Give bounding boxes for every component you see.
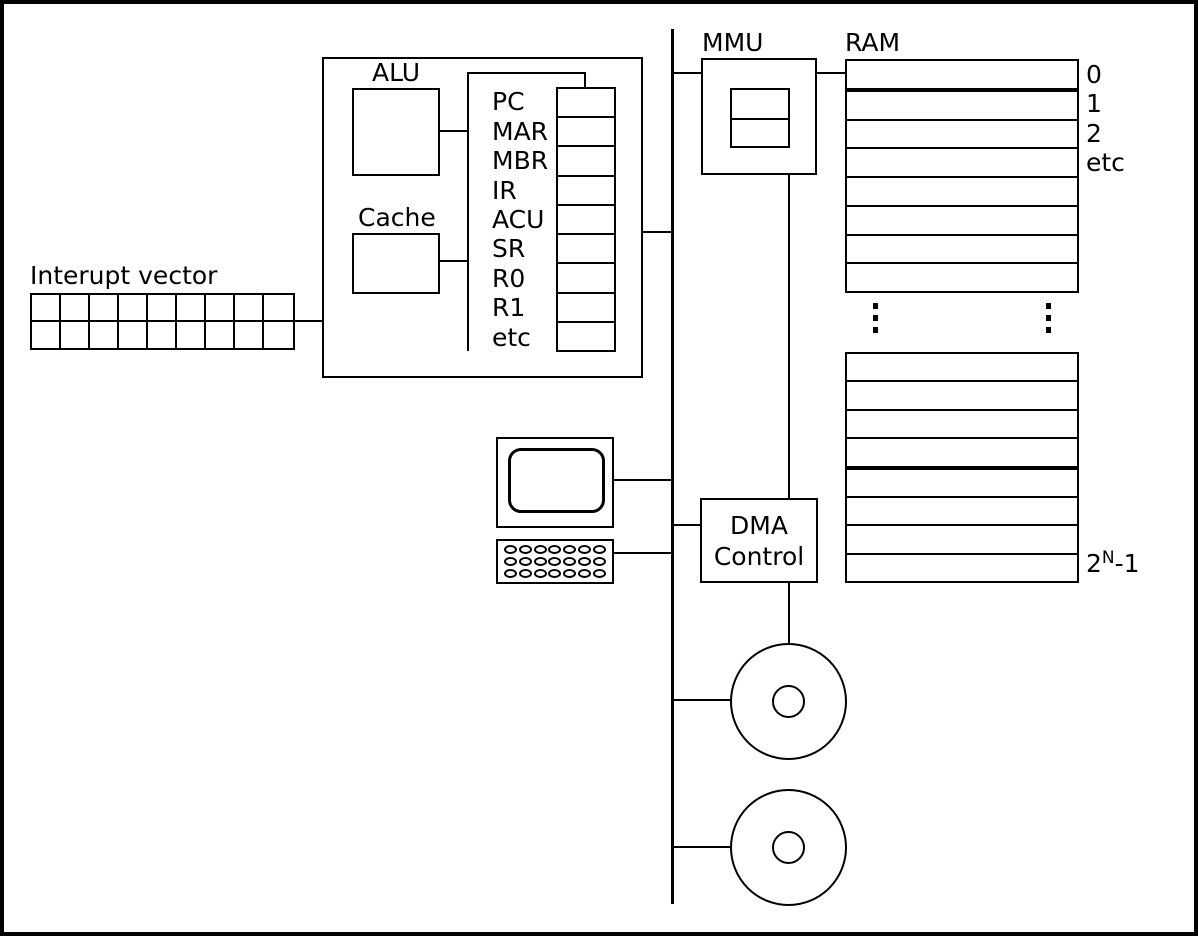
- ram-row: [847, 61, 1077, 92]
- interrupt-vector-cell: [61, 322, 90, 349]
- interrupt-vector-cell: [32, 295, 61, 322]
- ram-address-label: 2: [1086, 119, 1166, 148]
- register-label: MBR: [492, 146, 554, 175]
- ram-row: [847, 439, 1077, 469]
- ram-row: [847, 264, 1077, 291]
- keyboard-key: [563, 545, 576, 554]
- system-bus-line: [671, 29, 674, 904]
- keyboard-key: [593, 545, 606, 554]
- ram-row: [847, 178, 1077, 207]
- ram-row: [847, 498, 1077, 526]
- connector-mmu-to-ram: [817, 72, 845, 74]
- monitor-screen: [508, 448, 605, 513]
- register-label: SR: [492, 234, 554, 263]
- alu-label: ALU: [372, 60, 420, 86]
- register-label: ACU: [492, 205, 554, 234]
- keyboard-key: [578, 545, 591, 554]
- connector-bus-to-disk1: [672, 699, 730, 701]
- register-label: etc: [492, 323, 554, 352]
- connector-cache-to-registers: [439, 260, 469, 262]
- register-cell: [558, 264, 614, 293]
- connector-mmu-to-dma: [788, 175, 790, 498]
- interrupt-vector-grid: [30, 293, 295, 350]
- register-label: PC: [492, 87, 554, 116]
- interrupt-vector-label: Interupt vector: [30, 263, 217, 289]
- register-label: IR: [492, 175, 554, 204]
- interrupt-vector-cell: [119, 322, 148, 349]
- keyboard-key: [534, 557, 547, 566]
- register-label: MAR: [492, 116, 554, 145]
- ram-last-address-tail: -1: [1115, 549, 1140, 578]
- register-file-drop-line: [584, 72, 586, 88]
- keyboard-keys: [503, 543, 607, 580]
- interrupt-vector-cell: [148, 295, 177, 322]
- register-cell: [558, 89, 614, 118]
- ram-row: [847, 92, 1077, 121]
- register-file-spine-line: [467, 73, 469, 351]
- keyboard-key: [504, 545, 517, 554]
- mmu-label: MMU: [702, 30, 763, 56]
- keyboard-key: [548, 557, 561, 566]
- ram-row: [847, 121, 1077, 150]
- keyboard-key: [519, 557, 532, 566]
- ram-row: [847, 411, 1077, 439]
- ram-row: [847, 555, 1077, 581]
- connector-alu-to-registers: [439, 130, 469, 132]
- keyboard-key: [504, 569, 517, 578]
- keyboard-key: [534, 569, 547, 578]
- register-label: R0: [492, 264, 554, 293]
- keyboard-key: [519, 545, 532, 554]
- disk-hub-2: [772, 831, 805, 864]
- interrupt-vector-cell: [32, 322, 61, 349]
- connector-bus-to-dma: [672, 524, 700, 526]
- cache-label: Cache: [358, 205, 436, 231]
- keyboard-key: [534, 545, 547, 554]
- interrupt-vector-cell: [90, 322, 119, 349]
- disk-icon-1: [730, 643, 847, 760]
- ram-label: RAM: [845, 30, 900, 56]
- register-cell: [558, 294, 614, 323]
- connector-keyboard-to-bus: [614, 552, 672, 554]
- keyboard-key: [563, 569, 576, 578]
- connector-dma-to-disk: [788, 583, 790, 644]
- interrupt-vector-cell: [148, 322, 177, 349]
- ram-last-address-base: 2: [1086, 549, 1102, 578]
- register-label: R1: [492, 293, 554, 322]
- interrupt-vector-cell: [264, 295, 293, 322]
- architecture-diagram: Interupt vector ALU Cache PC MAR MBR IR …: [0, 0, 1198, 936]
- dma-label-line1: DMA: [730, 510, 788, 541]
- mmu-inner-box: [730, 88, 790, 148]
- dma-label: DMA Control: [702, 500, 816, 581]
- ram-row: [847, 354, 1077, 382]
- interrupt-vector-cell: [206, 322, 235, 349]
- ram-bottom-block: [845, 352, 1079, 583]
- ram-top-block: [845, 59, 1079, 293]
- register-cell: [558, 206, 614, 235]
- connector-bus-to-mmu: [672, 72, 701, 74]
- interrupt-vector-cell: [235, 295, 264, 322]
- register-cell: [558, 323, 614, 350]
- register-cells: [556, 87, 616, 352]
- ram-address-label: 1: [1086, 89, 1166, 118]
- connector-interrupt-to-cpu: [293, 320, 325, 322]
- ram-row: [847, 207, 1077, 236]
- ram-address-label: 0: [1086, 60, 1166, 89]
- keyboard-key: [578, 569, 591, 578]
- connector-bus-to-disk2: [672, 846, 730, 848]
- keyboard-key: [593, 569, 606, 578]
- keyboard-key: [548, 569, 561, 578]
- monitor-icon: [496, 437, 614, 528]
- keyboard-icon: [496, 539, 614, 584]
- ram-address-label: etc: [1086, 148, 1166, 177]
- dma-label-line2: Control: [714, 541, 804, 572]
- ram-last-address-label: 2N-1: [1086, 551, 1140, 580]
- disk-icon-2: [730, 789, 847, 906]
- interrupt-vector-cell: [119, 295, 148, 322]
- dma-box: DMA Control: [700, 498, 818, 583]
- register-cell: [558, 235, 614, 264]
- interrupt-vector-cell: [235, 322, 264, 349]
- ram-row: [847, 382, 1077, 410]
- interrupt-vector-cell: [264, 322, 293, 349]
- keyboard-key: [519, 569, 532, 578]
- interrupt-vector-cell: [61, 295, 90, 322]
- register-cell: [558, 118, 614, 147]
- interrupt-vector-cell: [90, 295, 119, 322]
- cache-box: [352, 233, 440, 294]
- mmu-box: [701, 58, 817, 175]
- ram-row: [847, 149, 1077, 178]
- ram-ellipsis-left: [873, 303, 878, 333]
- ram-last-address-exponent: N: [1102, 548, 1115, 568]
- keyboard-key: [593, 557, 606, 566]
- disk-hub-1: [772, 685, 805, 718]
- keyboard-key: [548, 545, 561, 554]
- mmu-inner-divider: [732, 118, 788, 120]
- connector-monitor-to-bus: [614, 479, 672, 481]
- keyboard-key: [578, 557, 591, 566]
- ram-ellipsis-right: [1046, 303, 1051, 333]
- ram-row: [847, 526, 1077, 554]
- interrupt-vector-cell: [177, 295, 206, 322]
- connector-cpu-to-bus: [643, 231, 672, 233]
- ram-row: [847, 470, 1077, 498]
- register-cell: [558, 147, 614, 176]
- alu-box: [352, 88, 440, 176]
- keyboard-key: [563, 557, 576, 566]
- interrupt-vector-cell: [206, 295, 235, 322]
- interrupt-vector-cell: [177, 322, 206, 349]
- register-file-top-line: [467, 72, 586, 74]
- ram-row: [847, 236, 1077, 265]
- ram-address-labels: 0 1 2 etc: [1086, 60, 1166, 177]
- register-cell: [558, 177, 614, 206]
- register-labels: PC MAR MBR IR ACU SR R0 R1 etc: [492, 87, 554, 352]
- keyboard-key: [504, 557, 517, 566]
